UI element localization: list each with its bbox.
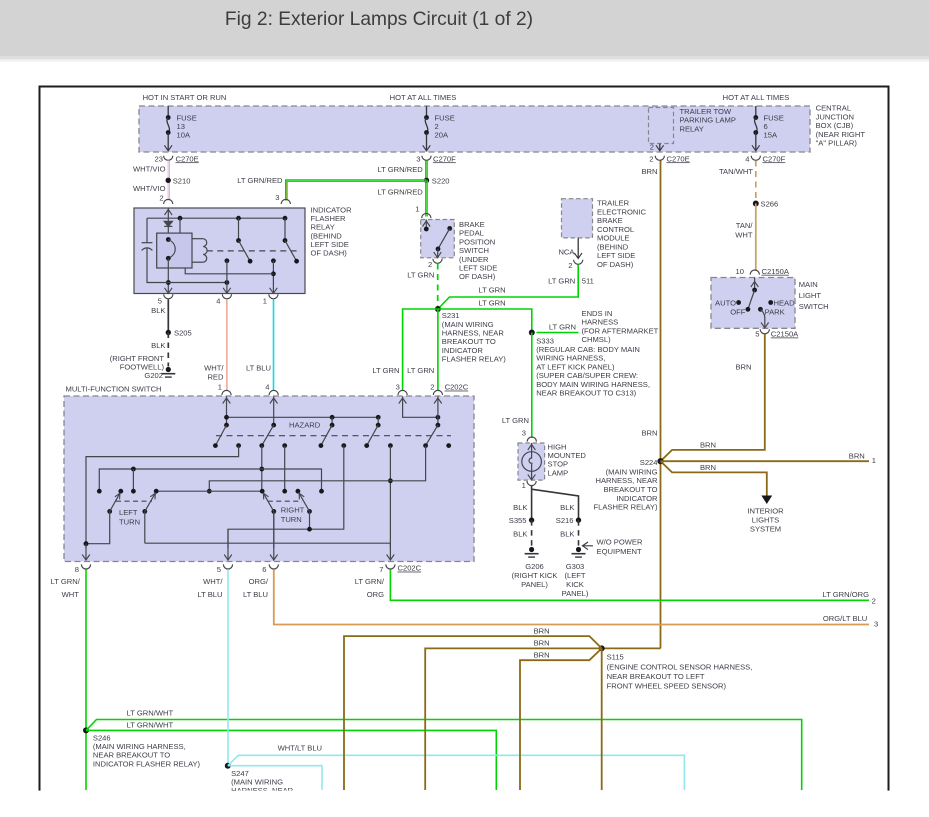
svg-text:LT GRN: LT GRN (478, 286, 505, 295)
svg-text:1: 1 (415, 205, 419, 214)
svg-text:NCA: NCA (558, 248, 575, 257)
svg-text:BRN: BRN (735, 363, 751, 372)
svg-text:ORG: ORG (367, 590, 384, 599)
svg-text:SWITCH: SWITCH (799, 302, 829, 311)
svg-text:INDICATOR: INDICATOR (616, 494, 658, 503)
svg-text:WHT/: WHT/ (203, 577, 223, 586)
svg-text:WHT/: WHT/ (204, 364, 224, 373)
svg-text:BRN: BRN (534, 651, 550, 660)
svg-text:BRN: BRN (700, 463, 716, 472)
svg-text:WHT: WHT (62, 590, 80, 599)
svg-text:(UNDER: (UNDER (459, 255, 489, 264)
svg-text:BRAKE: BRAKE (597, 216, 623, 225)
svg-text:POSITION: POSITION (459, 237, 495, 246)
svg-text:C270F: C270F (433, 154, 456, 163)
svg-text:(MAIN WIRING: (MAIN WIRING (231, 778, 283, 787)
svg-text:G303: G303 (566, 562, 585, 571)
svg-text:(NEAR RIGHT: (NEAR RIGHT (816, 130, 866, 139)
svg-text:S115: S115 (607, 652, 624, 661)
svg-text:BLK: BLK (513, 503, 527, 512)
svg-text:C270E: C270E (667, 154, 690, 163)
svg-text:2: 2 (872, 597, 876, 606)
svg-text:LT GRN/: LT GRN/ (51, 577, 81, 586)
svg-text:S355: S355 (509, 516, 527, 525)
svg-text:20A: 20A (435, 131, 449, 140)
svg-text:S216: S216 (556, 516, 574, 525)
svg-text:Fig 2: Exterior Lamps Circuit: Fig 2: Exterior Lamps Circuit (1 of 2) (225, 9, 533, 30)
svg-text:BRN: BRN (641, 428, 657, 437)
svg-text:10A: 10A (177, 131, 191, 140)
svg-text:LIGHT: LIGHT (799, 291, 822, 300)
svg-text:S333: S333 (536, 336, 554, 345)
svg-text:PEDAL: PEDAL (459, 229, 484, 238)
svg-text:PANEL): PANEL) (521, 580, 548, 589)
svg-text:3: 3 (416, 154, 420, 163)
svg-text:LT GRN/RED: LT GRN/RED (237, 176, 283, 185)
svg-text:5: 5 (755, 330, 759, 339)
svg-text:CHMSL): CHMSL) (582, 335, 612, 344)
svg-text:S247: S247 (231, 769, 249, 778)
svg-text:(RIGHT KICK: (RIGHT KICK (512, 571, 558, 580)
svg-text:(MAIN WIRING HARNESS,: (MAIN WIRING HARNESS, (93, 742, 186, 751)
svg-text:6: 6 (262, 565, 266, 574)
svg-text:(FOR AFTERMARKET: (FOR AFTERMARKET (582, 326, 659, 335)
svg-text:C270F: C270F (763, 154, 786, 163)
svg-text:2: 2 (568, 261, 572, 270)
svg-text:LIGHTS: LIGHTS (752, 516, 779, 525)
svg-text:4: 4 (265, 383, 269, 392)
svg-text:S224: S224 (640, 458, 658, 467)
svg-text:LT BLU: LT BLU (243, 590, 268, 599)
svg-text:(ENGINE CONTROL SENSOR HARNESS: (ENGINE CONTROL SENSOR HARNESS, (607, 662, 753, 671)
svg-text:ORG/: ORG/ (249, 577, 269, 586)
svg-text:BLK: BLK (560, 503, 574, 512)
svg-text:S220: S220 (432, 176, 450, 185)
svg-text:S210: S210 (173, 176, 191, 185)
svg-text:"A" PILLAR): "A" PILLAR) (816, 139, 858, 148)
svg-text:AT LEFT KICK PANEL): AT LEFT KICK PANEL) (536, 362, 615, 371)
svg-text:C202C: C202C (398, 564, 422, 573)
svg-text:RELAY: RELAY (680, 125, 704, 134)
svg-text:C202C: C202C (445, 383, 469, 392)
svg-text:S205: S205 (174, 328, 192, 337)
svg-text:(MAIN WIRING: (MAIN WIRING (442, 320, 494, 329)
svg-text:BODY MAIN WIRING HARNESS,: BODY MAIN WIRING HARNESS, (536, 380, 650, 389)
svg-text:NEAR BREAKOUT TO C313): NEAR BREAKOUT TO C313) (536, 389, 636, 398)
svg-text:2: 2 (430, 383, 434, 392)
svg-text:NEAR BREAKOUT TO LEFT: NEAR BREAKOUT TO LEFT (607, 672, 705, 681)
svg-text:HOT AT ALL TIMES: HOT AT ALL TIMES (390, 93, 457, 102)
svg-text:2: 2 (649, 154, 653, 163)
svg-text:INTERIOR: INTERIOR (747, 507, 784, 516)
svg-text:G202: G202 (144, 371, 163, 380)
svg-text:BREAKOUT TO: BREAKOUT TO (603, 485, 657, 494)
svg-text:3: 3 (874, 620, 878, 629)
svg-text:MAIN: MAIN (799, 280, 818, 289)
svg-text:C2150A: C2150A (771, 330, 799, 339)
svg-text:EQUIPMENT: EQUIPMENT (597, 547, 643, 556)
svg-text:1: 1 (522, 481, 526, 490)
svg-text:INDICATOR FLASHER RELAY): INDICATOR FLASHER RELAY) (93, 759, 201, 768)
svg-text:HEAD: HEAD (774, 299, 796, 308)
svg-text:C2150A: C2150A (762, 267, 790, 276)
svg-text:LEFT: LEFT (119, 508, 138, 517)
svg-text:S246: S246 (93, 733, 111, 742)
svg-text:BRAKE: BRAKE (459, 220, 485, 229)
svg-text:15A: 15A (764, 131, 778, 140)
svg-text:G206: G206 (525, 562, 544, 571)
svg-text:C270E: C270E (176, 154, 199, 163)
svg-text:1: 1 (872, 456, 876, 465)
svg-text:4: 4 (216, 297, 220, 306)
svg-text:W/O POWER: W/O POWER (597, 538, 643, 547)
svg-text:8: 8 (75, 565, 79, 574)
svg-text:ENDS IN: ENDS IN (582, 309, 613, 318)
svg-text:OF DASH): OF DASH) (459, 272, 496, 281)
svg-text:CONTROL: CONTROL (597, 225, 634, 234)
svg-text:TAN/: TAN/ (736, 221, 754, 230)
svg-text:3: 3 (522, 428, 526, 437)
svg-text:LT GRN: LT GRN (407, 271, 434, 280)
svg-text:AUTO: AUTO (715, 299, 736, 308)
svg-text:LT GRN/RED: LT GRN/RED (378, 188, 424, 197)
svg-text:3: 3 (275, 193, 279, 202)
svg-text:1: 1 (218, 383, 222, 392)
svg-text:WHT: WHT (735, 231, 753, 240)
svg-text:BLK: BLK (513, 530, 527, 539)
svg-text:RIGHT: RIGHT (281, 505, 305, 514)
svg-text:HARNESS: HARNESS (582, 318, 619, 327)
svg-text:HARNESS, NEAR: HARNESS, NEAR (595, 476, 658, 485)
svg-text:2: 2 (159, 194, 163, 203)
svg-text:TURN: TURN (119, 517, 140, 526)
svg-text:BRN: BRN (534, 639, 550, 648)
svg-text:LT GRN/WHT: LT GRN/WHT (127, 709, 174, 718)
svg-text:FRONT WHEEL SPEED SENSOR): FRONT WHEEL SPEED SENSOR) (607, 682, 727, 691)
svg-text:OF DASH): OF DASH) (597, 260, 634, 269)
svg-text:TAN/WHT: TAN/WHT (719, 167, 753, 176)
svg-text:RED: RED (207, 373, 224, 382)
svg-text:SYSTEM: SYSTEM (750, 525, 781, 534)
svg-text:OF DASH): OF DASH) (311, 249, 348, 258)
svg-text:S231: S231 (442, 311, 460, 320)
svg-text:(MAIN WIRING: (MAIN WIRING (606, 467, 658, 476)
svg-text:LT GRN: LT GRN (502, 416, 529, 425)
svg-text:(REGULAR CAB: BODY MAIN: (REGULAR CAB: BODY MAIN (536, 345, 640, 354)
svg-text:PARK: PARK (765, 308, 785, 317)
svg-text:S266: S266 (761, 199, 779, 208)
svg-text:KICK: KICK (566, 580, 584, 589)
svg-text:CENTRAL: CENTRAL (816, 104, 851, 113)
svg-text:(BEHIND: (BEHIND (597, 242, 629, 251)
svg-text:BRN: BRN (641, 167, 657, 176)
svg-text:LT GRN: LT GRN (548, 277, 575, 286)
svg-text:ORG/LT BLU: ORG/LT BLU (823, 614, 867, 623)
svg-text:INDICATOR: INDICATOR (442, 346, 484, 355)
svg-text:LT GRN/RED: LT GRN/RED (378, 165, 424, 174)
svg-text:5: 5 (158, 297, 162, 306)
svg-text:FLASHER RELAY): FLASHER RELAY) (593, 503, 657, 512)
svg-text:HAZARD: HAZARD (289, 421, 321, 430)
svg-text:ELECTRONIC: ELECTRONIC (597, 207, 646, 216)
svg-text:FLASHER RELAY): FLASHER RELAY) (442, 355, 506, 364)
svg-text:LEFT SIDE: LEFT SIDE (459, 264, 497, 273)
svg-text:HOT AT ALL TIMES: HOT AT ALL TIMES (723, 93, 790, 102)
svg-text:BLK: BLK (151, 306, 165, 315)
svg-text:BRN: BRN (849, 452, 865, 461)
svg-text:OFF: OFF (730, 308, 746, 317)
svg-text:BRN: BRN (534, 626, 550, 635)
svg-text:TURN: TURN (281, 515, 302, 524)
svg-text:PANEL): PANEL) (562, 589, 589, 598)
svg-text:LT GRN/WHT: LT GRN/WHT (127, 720, 174, 729)
svg-text:LT GRN: LT GRN (549, 322, 576, 331)
svg-text:LAMP: LAMP (548, 468, 569, 477)
svg-text:7: 7 (379, 565, 383, 574)
svg-text:BLK: BLK (151, 341, 165, 350)
svg-text:(SUPER CAB/SUPER CREW:: (SUPER CAB/SUPER CREW: (536, 371, 638, 380)
svg-text:BRN: BRN (700, 440, 716, 449)
svg-text:LT GRN/: LT GRN/ (355, 577, 385, 586)
svg-text:WHT/VIO: WHT/VIO (133, 165, 166, 174)
svg-text:HOT IN START OR RUN: HOT IN START OR RUN (143, 93, 227, 102)
svg-text:LT GRN/ORG: LT GRN/ORG (822, 590, 869, 599)
svg-text:WHT/LT BLU: WHT/LT BLU (278, 744, 322, 753)
svg-text:HARNESS, NEAR: HARNESS, NEAR (442, 329, 505, 338)
svg-text:PARKING LAMP: PARKING LAMP (680, 116, 736, 125)
svg-text:4: 4 (745, 154, 749, 163)
svg-text:(LEFT: (LEFT (564, 571, 585, 580)
svg-text:10: 10 (736, 267, 744, 276)
svg-text:LT BLU: LT BLU (246, 364, 271, 373)
svg-text:2: 2 (428, 260, 432, 269)
svg-text:WIRING HARNESS,: WIRING HARNESS, (536, 354, 605, 363)
svg-text:2: 2 (650, 143, 654, 152)
svg-text:JUNCTION: JUNCTION (816, 112, 854, 121)
svg-text:23: 23 (155, 154, 163, 163)
svg-text:SWITCH: SWITCH (459, 246, 489, 255)
svg-text:BREAKOUT TO: BREAKOUT TO (442, 337, 496, 346)
svg-text:LT GRN: LT GRN (407, 366, 434, 375)
svg-text:TRAILER: TRAILER (597, 199, 630, 208)
svg-text:LT GRN: LT GRN (478, 298, 505, 307)
svg-text:LEFT SIDE: LEFT SIDE (597, 251, 635, 260)
svg-text:BOX (CJB): BOX (CJB) (816, 121, 854, 130)
svg-text:511: 511 (582, 277, 594, 286)
svg-text:MODULE: MODULE (597, 234, 630, 243)
svg-text:MULTI-FUNCTION SWITCH: MULTI-FUNCTION SWITCH (66, 384, 162, 393)
svg-text:WHT/VIO: WHT/VIO (133, 184, 166, 193)
svg-text:LT GRN: LT GRN (372, 366, 399, 375)
svg-text:3: 3 (396, 383, 400, 392)
svg-text:NEAR BREAKOUT TO: NEAR BREAKOUT TO (93, 751, 170, 760)
svg-text:BLK: BLK (560, 530, 574, 539)
svg-text:LT BLU: LT BLU (197, 590, 222, 599)
svg-text:1: 1 (263, 297, 267, 306)
svg-text:5: 5 (217, 565, 221, 574)
svg-text:TRAILER TOW: TRAILER TOW (680, 107, 732, 116)
